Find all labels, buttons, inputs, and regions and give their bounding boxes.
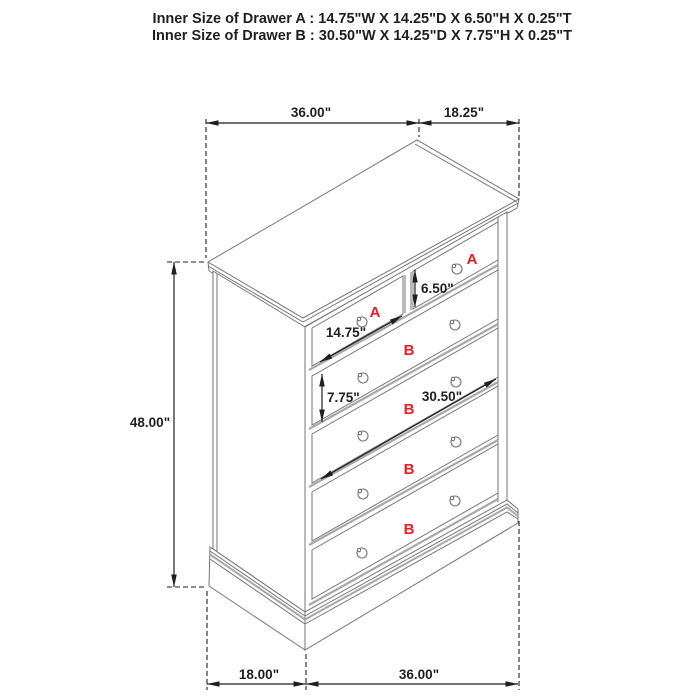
drawer-b2-label: B — [404, 401, 415, 418]
drawer-b3-label: B — [404, 461, 415, 478]
drawer-b-height-dimension: 7.75" — [327, 390, 360, 405]
drawer-a-height-dimension: 6.50" — [421, 281, 454, 296]
top-depth-dimension: 18.25" — [444, 105, 484, 120]
knob-highlight — [357, 548, 360, 551]
knob-highlight — [451, 377, 454, 380]
diagram-canvas: Inner Size of Drawer A : 14.75"W X 14.25… — [0, 0, 700, 700]
knob-highlight — [452, 264, 455, 267]
knob-highlight — [358, 489, 361, 492]
knob-highlight — [451, 437, 454, 440]
knob-highlight — [358, 431, 361, 434]
drawer-a-right-label: A — [467, 251, 478, 268]
drawer-a-left-label: A — [370, 304, 381, 321]
knob-highlight — [450, 496, 453, 499]
bottom-depth-dimension: 18.00" — [239, 667, 279, 682]
drawer-a-width-dimension: 14.75" — [326, 325, 366, 340]
tabletop-corner-edge — [208, 262, 209, 271]
bottom-width-dimension: 36.00" — [399, 667, 439, 682]
knob-highlight — [357, 317, 360, 320]
drawer-b-width-dimension: 30.50" — [422, 389, 462, 404]
knob-highlight — [358, 373, 361, 376]
height-dimension: 48.00" — [130, 415, 170, 430]
furniture-dimension-diagram: Inner Size of Drawer A : 14.75"W X 14.25… — [0, 0, 700, 700]
drawer-b1-label: B — [404, 342, 415, 359]
title-line-2: Inner Size of Drawer B : 30.50"W X 14.25… — [152, 28, 572, 44]
top-width-dimension: 36.00" — [291, 105, 331, 120]
dresser — [208, 140, 519, 650]
header: Inner Size of Drawer A : 14.75"W X 14.25… — [152, 11, 572, 44]
drawer-b4-label: B — [404, 521, 415, 538]
knob-highlight — [450, 320, 453, 323]
title-line-1: Inner Size of Drawer A : 14.75"W X 14.25… — [153, 11, 572, 27]
